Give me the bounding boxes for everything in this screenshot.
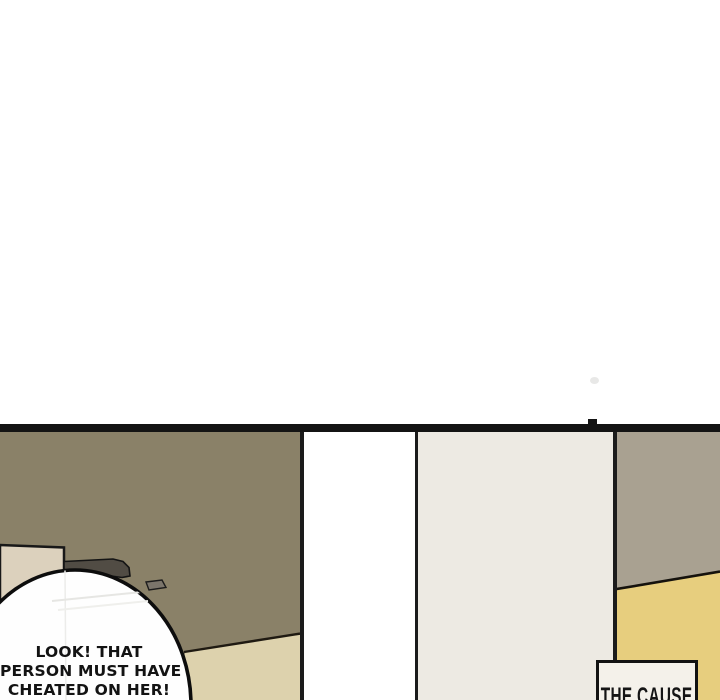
shelf-end (146, 580, 166, 590)
panel-divider-bar (0, 424, 720, 432)
bubble-line-2: PERSON MUST HAVE (0, 662, 178, 681)
comic-page[interactable]: LOOK! THAT PERSON MUST HAVE CHEATED ON H… (0, 0, 720, 700)
ink-smudge (590, 377, 599, 384)
comic-panel-kitchen: LOOK! THAT PERSON MUST HAVE CHEATED ON H… (0, 432, 304, 700)
speech-bubble-text: LOOK! THAT PERSON MUST HAVE CHEATED ON H… (0, 643, 178, 700)
bubble-line-1: LOOK! THAT (0, 643, 178, 662)
panel-divider-notch (588, 419, 597, 425)
caption-box: THE CAUSE (596, 660, 698, 700)
comic-panel-empty (415, 432, 617, 700)
bubble-line-3: CHEATED ON HER! (0, 681, 178, 700)
caption-text: THE CAUSE (601, 683, 693, 700)
